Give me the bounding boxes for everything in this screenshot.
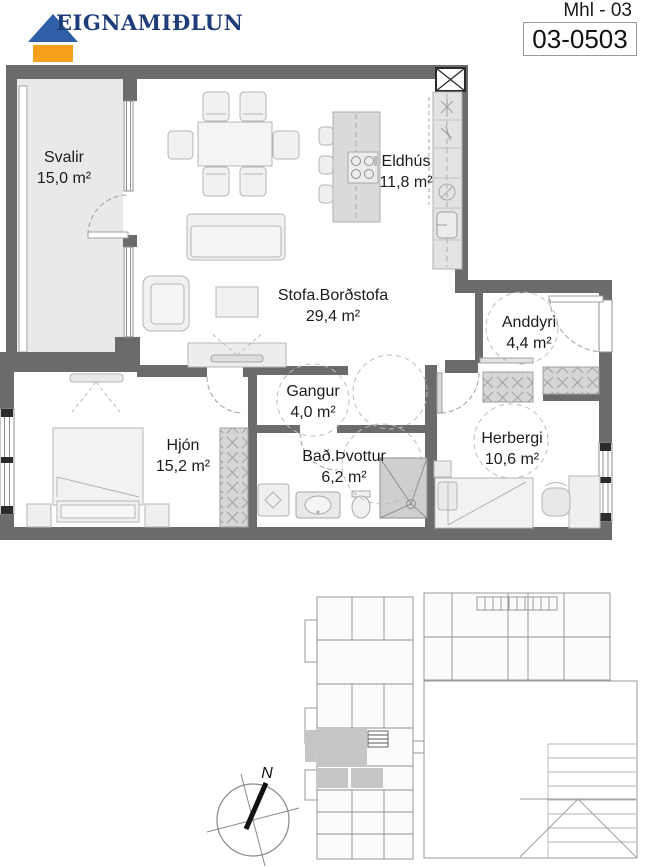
hjon-furniture: [27, 374, 248, 527]
stairwell: [368, 731, 388, 747]
room-label-herbergi: Herbergi 10,6 m²: [481, 428, 542, 470]
entrance-door-leaf: [549, 296, 603, 302]
nightstand: [27, 504, 51, 527]
kitchen-counter: [429, 92, 462, 269]
toilet-icon: [352, 491, 370, 518]
compass: N: [207, 765, 299, 866]
nightstand: [145, 504, 169, 527]
herbergi-furniture: [434, 461, 600, 528]
room-label-gangur: Gangur 4,0 m²: [286, 381, 339, 423]
floorplan-drawing: N: [0, 0, 645, 867]
tv-icon: [211, 355, 263, 362]
bar-stools: [319, 127, 333, 203]
room-label-bad: Bað.Þvottur 6,2 m²: [302, 446, 386, 488]
unit-number-box: 03-0503: [523, 22, 637, 56]
north-label: N: [261, 765, 273, 782]
shower-icon: [380, 458, 427, 518]
room-label-stofa: Stofa.Borðstofa 29,4 m²: [278, 285, 388, 327]
agency-name: EIGNAMIÐLUN: [56, 10, 243, 35]
balcony-railing: [19, 86, 27, 352]
room-label-svalir: Svalir 15,0 m²: [37, 147, 91, 189]
desk-chair: [542, 488, 570, 516]
shaft-symbol: [436, 68, 465, 91]
parking-stripes: [548, 744, 636, 858]
double-bed: [53, 428, 143, 505]
kitchen-island: [319, 112, 380, 222]
room-label-eldhus: Eldhús 11,8 m²: [379, 151, 432, 193]
wardrobe: [220, 428, 248, 527]
tv-icon-hjon: [70, 374, 123, 382]
dining-set: [168, 92, 299, 196]
balcony-floor: [17, 79, 123, 352]
dining-table: [198, 122, 272, 166]
building-part-label: Mhl - 03: [563, 0, 632, 22]
room-label-hjon: Hjón 15,2 m²: [156, 435, 210, 477]
living-furniture: [143, 214, 286, 367]
unit-number: 03-0503: [532, 24, 627, 55]
cooktop-icon: [348, 152, 378, 183]
site-plan: [305, 593, 637, 859]
washing-machine-icon: [258, 484, 289, 516]
desk: [569, 476, 600, 528]
room-label-anddyri: Anddyri 4,4 m²: [502, 312, 556, 354]
floorplan-page: N EIGNAMIÐLUN Mhl - 03 03-0503 Svalir 15…: [0, 0, 645, 867]
coffee-table: [216, 287, 258, 317]
